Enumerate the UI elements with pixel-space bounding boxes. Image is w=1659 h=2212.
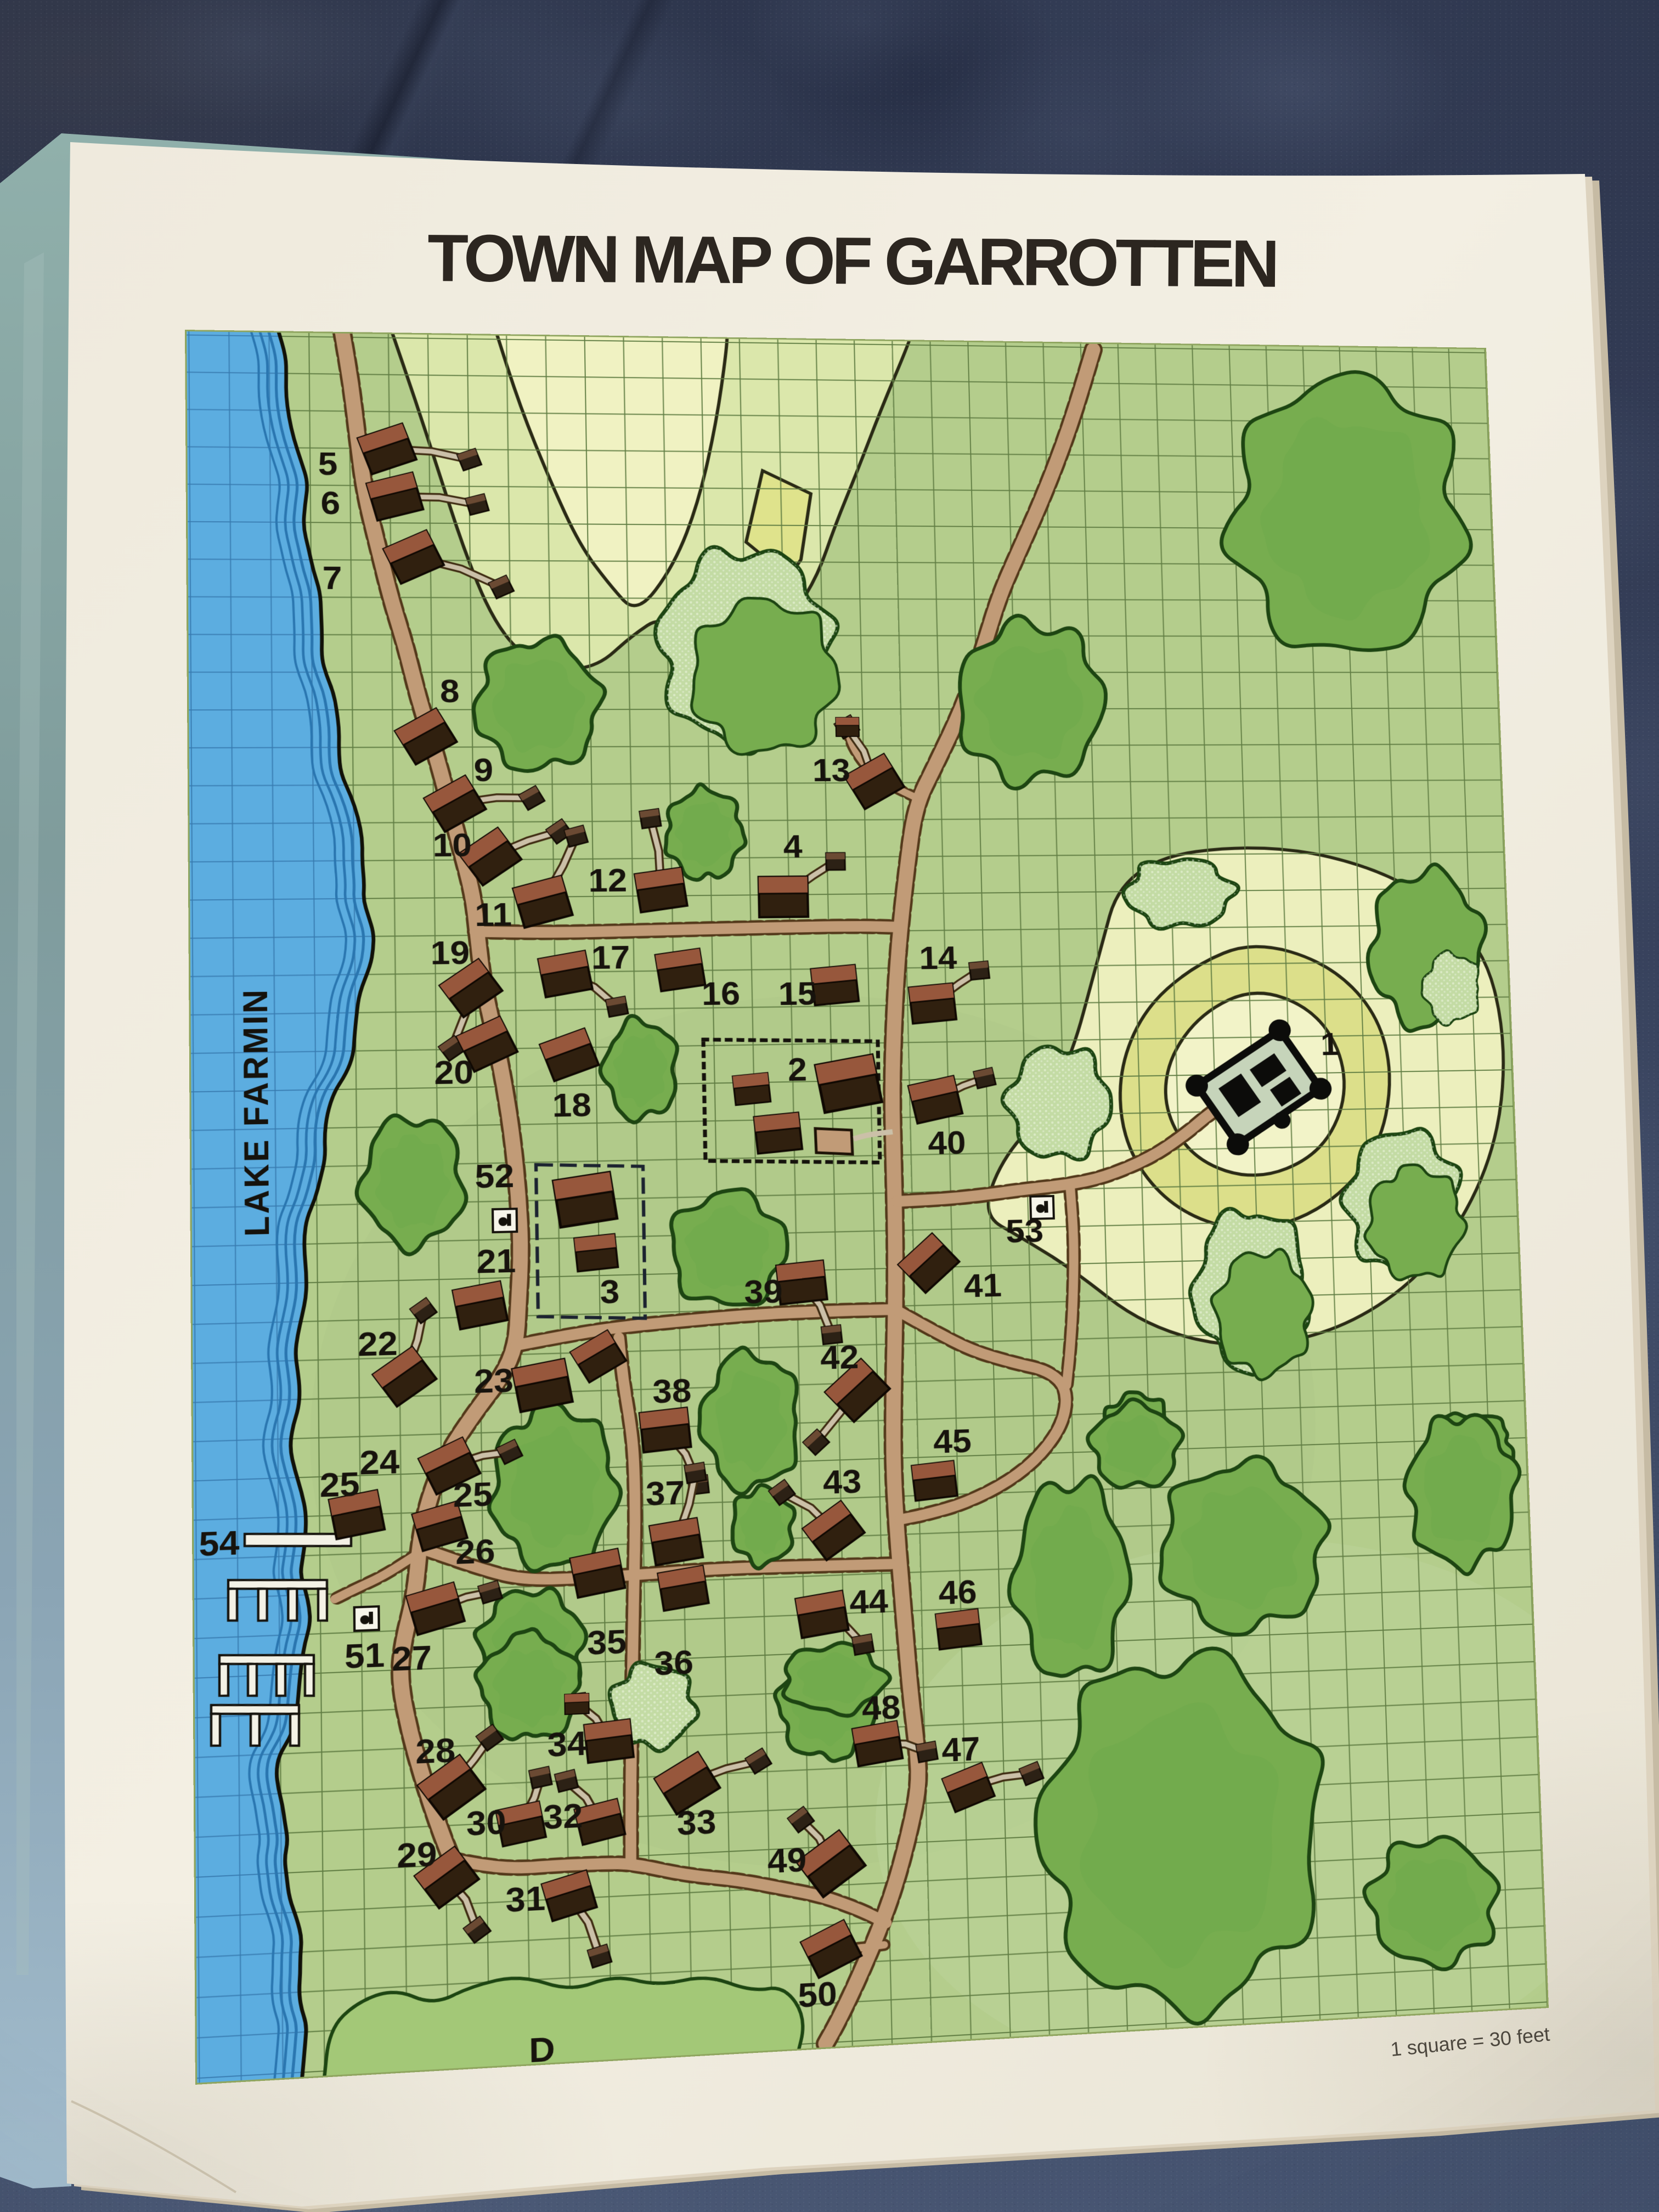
- svg-text:32: 32: [543, 1797, 583, 1837]
- svg-text:21: 21: [476, 1242, 516, 1280]
- svg-text:42: 42: [820, 1339, 859, 1377]
- svg-text:26: 26: [455, 1532, 495, 1572]
- svg-text:45: 45: [933, 1423, 972, 1461]
- svg-text:28: 28: [415, 1731, 456, 1771]
- svg-text:20: 20: [434, 1054, 473, 1092]
- svg-text:30: 30: [466, 1803, 506, 1843]
- svg-text:10: 10: [432, 827, 472, 864]
- svg-text:46: 46: [938, 1573, 977, 1612]
- svg-text:9: 9: [473, 752, 493, 788]
- svg-text:33: 33: [676, 1803, 716, 1843]
- svg-text:43: 43: [822, 1463, 862, 1502]
- svg-text:37: 37: [645, 1474, 685, 1513]
- svg-text:51: 51: [345, 1636, 385, 1676]
- svg-text:39: 39: [744, 1273, 783, 1311]
- svg-text:18: 18: [552, 1086, 591, 1124]
- svg-text:41: 41: [963, 1267, 1002, 1305]
- svg-text:19: 19: [430, 934, 470, 972]
- svg-text:27: 27: [392, 1639, 432, 1679]
- svg-text:50: 50: [798, 1974, 838, 2015]
- svg-text:6: 6: [320, 485, 340, 522]
- svg-text:2: 2: [787, 1051, 807, 1088]
- svg-text:44: 44: [849, 1582, 889, 1621]
- svg-text:13: 13: [812, 752, 850, 788]
- svg-text:24: 24: [359, 1443, 400, 1482]
- svg-text:4: 4: [783, 828, 803, 865]
- svg-text:TOWN MAP OF GARROTTEN: TOWN MAP OF GARROTTEN: [427, 221, 1277, 301]
- svg-text:48: 48: [861, 1688, 901, 1728]
- svg-text:40: 40: [928, 1124, 967, 1161]
- svg-text:22: 22: [358, 1325, 398, 1364]
- svg-text:16: 16: [701, 975, 740, 1013]
- svg-text:8: 8: [440, 673, 460, 710]
- svg-text:53: 53: [1006, 1212, 1044, 1250]
- svg-text:25: 25: [319, 1465, 360, 1505]
- svg-text:31: 31: [505, 1879, 546, 1920]
- svg-text:29: 29: [397, 1835, 437, 1875]
- svg-text:17: 17: [591, 939, 630, 977]
- svg-text:34: 34: [547, 1724, 588, 1764]
- svg-text:49: 49: [767, 1841, 806, 1881]
- svg-text:3: 3: [600, 1273, 620, 1311]
- svg-text:14: 14: [919, 940, 958, 977]
- svg-text:15: 15: [778, 975, 817, 1013]
- svg-text:11: 11: [475, 896, 512, 934]
- svg-text:12: 12: [588, 862, 628, 899]
- svg-text:5: 5: [318, 445, 337, 482]
- svg-text:35: 35: [587, 1623, 627, 1662]
- svg-text:1: 1: [1320, 1026, 1339, 1063]
- svg-text:25: 25: [453, 1475, 493, 1515]
- svg-text:7: 7: [322, 560, 342, 597]
- svg-text:36: 36: [654, 1643, 694, 1683]
- svg-text:52: 52: [475, 1157, 514, 1195]
- svg-text:LAKE FARMIN: LAKE FARMIN: [235, 988, 276, 1237]
- svg-text:38: 38: [652, 1372, 692, 1410]
- svg-text:23: 23: [474, 1362, 514, 1401]
- svg-text:47: 47: [941, 1730, 981, 1769]
- svg-text:54: 54: [199, 1524, 240, 1564]
